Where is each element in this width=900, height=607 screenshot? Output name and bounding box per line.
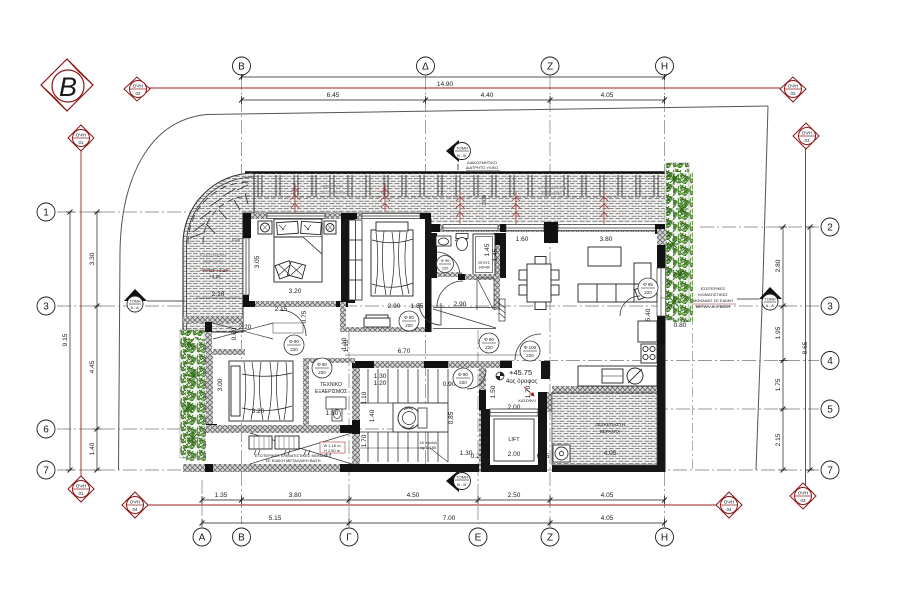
svg-text:ΜΕΤΑΛΛΙΚΗ ΒΑΣΗ: ΜΕΤΑΛΛΙΚΗ ΒΑΣΗ (696, 304, 731, 309)
svg-text:4: 4 (827, 356, 833, 367)
svg-text:3.00: 3.00 (217, 378, 224, 391)
svg-text:6.45: 6.45 (327, 92, 340, 99)
svg-text:Z: Z (547, 62, 553, 73)
svg-text:01: 01 (78, 491, 84, 496)
svg-text:Φ 90: Φ 90 (404, 315, 414, 320)
svg-text:3: 3 (827, 302, 833, 313)
svg-text:H: H (661, 533, 668, 544)
svg-text:01: 01 (78, 140, 84, 145)
svg-text:LIFT: LIFT (508, 437, 520, 443)
svg-text:ΒΕΡΑΝΤΑ: ΒΕΡΑΝΤΑ (542, 191, 562, 196)
svg-text:1.10: 1.10 (361, 391, 368, 404)
svg-text:H 1.50 m: H 1.50 m (324, 448, 341, 453)
svg-text:220: 220 (459, 380, 467, 385)
svg-text:1.70: 1.70 (361, 434, 368, 447)
svg-text:3.80: 3.80 (289, 492, 302, 499)
svg-text:3.80: 3.80 (600, 236, 613, 243)
svg-text:2.90: 2.90 (388, 303, 401, 310)
svg-text:5: 5 (827, 405, 833, 416)
svg-text:4ος όροφος: 4ος όροφος (506, 378, 538, 385)
svg-text:1.60: 1.60 (516, 236, 529, 243)
svg-text:2.10: 2.10 (212, 291, 225, 298)
svg-text:Φ 90: Φ 90 (458, 372, 468, 377)
svg-text:220: 220 (442, 266, 449, 271)
svg-text:+4.20: +4.20 (209, 274, 221, 279)
svg-text:1.35: 1.35 (215, 492, 228, 499)
svg-text:ΟΨΗ: ΟΨΗ (802, 131, 813, 136)
svg-text:6.95: 6.95 (537, 453, 550, 460)
svg-text:Φ 90: Φ 90 (289, 339, 299, 344)
svg-text:Z: Z (547, 533, 553, 544)
svg-text:ΟΨΗ: ΟΨΗ (798, 491, 809, 496)
svg-text:1.40: 1.40 (369, 409, 376, 422)
svg-text:03: 03 (800, 498, 806, 503)
svg-text:04: 04 (132, 507, 138, 512)
svg-text:ΟΨΗ: ΟΨΗ (130, 500, 141, 505)
svg-text:2.20: 2.20 (239, 324, 252, 331)
svg-text:ΚΛΙΜΑΤΙΣΤΙΚΕΣ: ΚΛΙΜΑΤΙΣΤΙΚΕΣ (698, 292, 728, 297)
svg-text:ΕΞΑΕΡΙΣΜΟΣ: ΕΞΑΕΡΙΣΜΟΣ (315, 389, 347, 395)
svg-text:ΔΕΞΑΜΕΝΗ: ΔΕΞΑΜΕΝΗ (320, 190, 345, 195)
svg-text:3.30: 3.30 (89, 252, 96, 265)
svg-text:3.20: 3.20 (289, 288, 302, 295)
svg-text:4.05: 4.05 (601, 515, 614, 522)
svg-text:B: B (238, 533, 245, 544)
svg-text:3.20: 3.20 (252, 408, 265, 415)
svg-text:ΟΨΗ: ΟΨΗ (724, 500, 735, 505)
svg-text:5.15: 5.15 (269, 515, 282, 522)
svg-text:2.15: 2.15 (275, 306, 288, 313)
svg-text:2.00: 2.00 (508, 404, 521, 411)
svg-text:1.20: 1.20 (374, 380, 387, 387)
svg-text:03: 03 (804, 138, 810, 143)
svg-text:2: 2 (827, 223, 833, 234)
svg-text:02: 02 (135, 91, 141, 96)
svg-text:6.70: 6.70 (398, 348, 411, 355)
svg-text:ΒΕΡΑΝΤΑ: ΒΕΡΑΝΤΑ (600, 429, 620, 434)
svg-text:ΟΨΗ: ΟΨΗ (76, 133, 87, 138)
svg-text:ΕΣΩΤΕΡΙΚΕΣ: ΕΣΩΤΕΡΙΚΕΣ (701, 286, 726, 291)
svg-text:4.05: 4.05 (601, 92, 614, 99)
svg-text:1.75: 1.75 (775, 378, 782, 391)
svg-text:ΒΕΡΑΝΤΑ: ΒΕΡΑΝΤΑ (203, 259, 223, 264)
svg-text:1.10: 1.10 (343, 339, 350, 352)
svg-text:1: 1 (43, 208, 49, 219)
svg-text:1.60: 1.60 (326, 410, 339, 417)
svg-text:3: 3 (43, 302, 49, 313)
svg-text:ΟΨΗ: ΟΨΗ (788, 84, 799, 89)
svg-text:0.25: 0.25 (232, 237, 241, 242)
svg-text:ΔΙΑΤΡΗΤΟ ΥΛΙΚΟ: ΔΙΑΤΡΗΤΟ ΥΛΙΚΟ (466, 165, 499, 170)
svg-text:ΝΤΟΥΣ: ΝΤΟΥΣ (478, 261, 491, 265)
svg-text:Β - Β': Β - Β' (457, 482, 467, 487)
svg-text:ΒΕΡΑΝΤΑ: ΒΕΡΑΝΤΑ (323, 184, 343, 189)
svg-text:ΜΟΝΑΔΕΣ ΣΕ ΕΙΔΙΚΗ: ΜΟΝΑΔΕΣ ΣΕ ΕΙΔΙΚΗ (693, 298, 733, 303)
svg-text:ΟΨΗ: ΟΨΗ (133, 84, 144, 89)
svg-text:220: 220 (290, 347, 298, 352)
svg-text:ΚΑΛΥΜΜΕΝΗ: ΚΑΛΥΜΜΕΝΗ (538, 185, 567, 190)
svg-text:Φ 90: Φ 90 (441, 258, 451, 263)
svg-text:A: A (199, 533, 206, 544)
svg-text:4.05: 4.05 (601, 492, 614, 499)
svg-text:0.25: 0.25 (471, 453, 484, 460)
svg-text:Α - Α': Α - Α' (131, 306, 140, 310)
svg-text:Β - Β': Β - Β' (457, 153, 467, 158)
svg-text:9.15: 9.15 (62, 333, 69, 346)
svg-text:ΤΟΜΗ: ΤΟΜΗ (129, 300, 140, 304)
svg-text:1.95: 1.95 (775, 326, 782, 339)
svg-text:220: 220 (485, 345, 493, 350)
svg-text:1.70: 1.70 (525, 385, 532, 398)
svg-text:0.60: 0.60 (231, 327, 238, 340)
svg-text:4.40: 4.40 (481, 92, 494, 99)
svg-text:ΤΟΜΗ: ΤΟΜΗ (456, 146, 468, 151)
svg-text:2.90: 2.90 (454, 301, 467, 308)
svg-text:Γ: Γ (346, 533, 352, 544)
svg-text:1.45: 1.45 (484, 243, 491, 256)
svg-text:2.15: 2.15 (775, 433, 782, 446)
svg-text:7: 7 (827, 466, 833, 477)
svg-text:ΣΕ ΕΙΔΙΚΗ ΜΕΤΑΛΛΙΚΗ ΒΑΣΗ: ΣΕ ΕΙΔΙΚΗ ΜΕΤΑΛΛΙΚΗ ΒΑΣΗ (265, 458, 320, 463)
svg-text:220: 220 (405, 323, 413, 328)
svg-text:2.00: 2.00 (508, 451, 521, 458)
svg-text:2.50: 2.50 (508, 492, 521, 499)
svg-text:Φ 90: Φ 90 (484, 337, 494, 342)
svg-text:Φ 95: Φ 95 (643, 282, 653, 287)
svg-text:4.05: 4.05 (604, 450, 617, 457)
svg-text:7: 7 (43, 466, 49, 477)
svg-text:Α - Α': Α - Α' (766, 304, 775, 308)
svg-text:Φ 90: Φ 90 (317, 362, 327, 367)
svg-text:4.50: 4.50 (407, 492, 420, 499)
svg-text:ΟΨΗ: ΟΨΗ (76, 484, 87, 489)
svg-text:2.00: 2.00 (482, 195, 488, 205)
svg-text:2.80: 2.80 (775, 259, 782, 272)
svg-text:5.40: 5.40 (645, 308, 652, 321)
svg-text:1.85: 1.85 (411, 303, 424, 310)
svg-text:220: 220 (318, 370, 326, 375)
svg-text:14.90: 14.90 (437, 81, 454, 88)
svg-text:ΤΟΜΗ: ΤΟΜΗ (456, 475, 468, 480)
svg-text:6: 6 (43, 425, 49, 436)
svg-text:+45.75: +45.75 (509, 368, 532, 377)
svg-text:Δ: Δ (422, 62, 429, 73)
svg-text:0.75: 0.75 (301, 310, 308, 323)
svg-text:E: E (475, 533, 482, 544)
svg-text:B: B (238, 62, 245, 73)
svg-text:1.65: 1.65 (540, 430, 547, 443)
svg-text:1.40: 1.40 (89, 442, 96, 455)
svg-text:ΞΕΣΚΕΠΑΣΤΗ: ΞΕΣΚΕΠΑΣΤΗ (595, 422, 625, 427)
svg-text:220: 220 (644, 290, 652, 295)
svg-text:ΤΟΜΗ: ΤΟΜΗ (764, 298, 775, 302)
svg-text:1.30: 1.30 (374, 373, 387, 380)
svg-text:04: 04 (726, 507, 732, 512)
svg-text:220: 220 (526, 353, 534, 358)
svg-text:1.45: 1.45 (492, 248, 499, 261)
svg-text:ΤΕΧΝΙΚΟ: ΤΕΧΝΙΚΟ (320, 382, 342, 388)
svg-text:02: 02 (790, 91, 796, 96)
svg-text:1.50: 1.50 (490, 385, 497, 398)
svg-text:0.85: 0.85 (448, 411, 455, 424)
svg-text:H: H (661, 62, 668, 73)
svg-text:4.45: 4.45 (89, 360, 96, 373)
svg-text:B: B (59, 72, 77, 102)
svg-text:ΚΛΕΙΣΜΕΝΗ: ΚΛΕΙΣΜΕΝΗ (200, 253, 226, 258)
svg-text:7.00: 7.00 (443, 515, 456, 522)
svg-text:ύψ 0.185: ύψ 0.185 (420, 445, 437, 450)
svg-text:0.80: 0.80 (674, 322, 687, 329)
svg-text:145×80: 145×80 (478, 266, 490, 270)
svg-text:Φ 100: Φ 100 (524, 345, 537, 350)
svg-text:3.05: 3.05 (254, 255, 261, 268)
